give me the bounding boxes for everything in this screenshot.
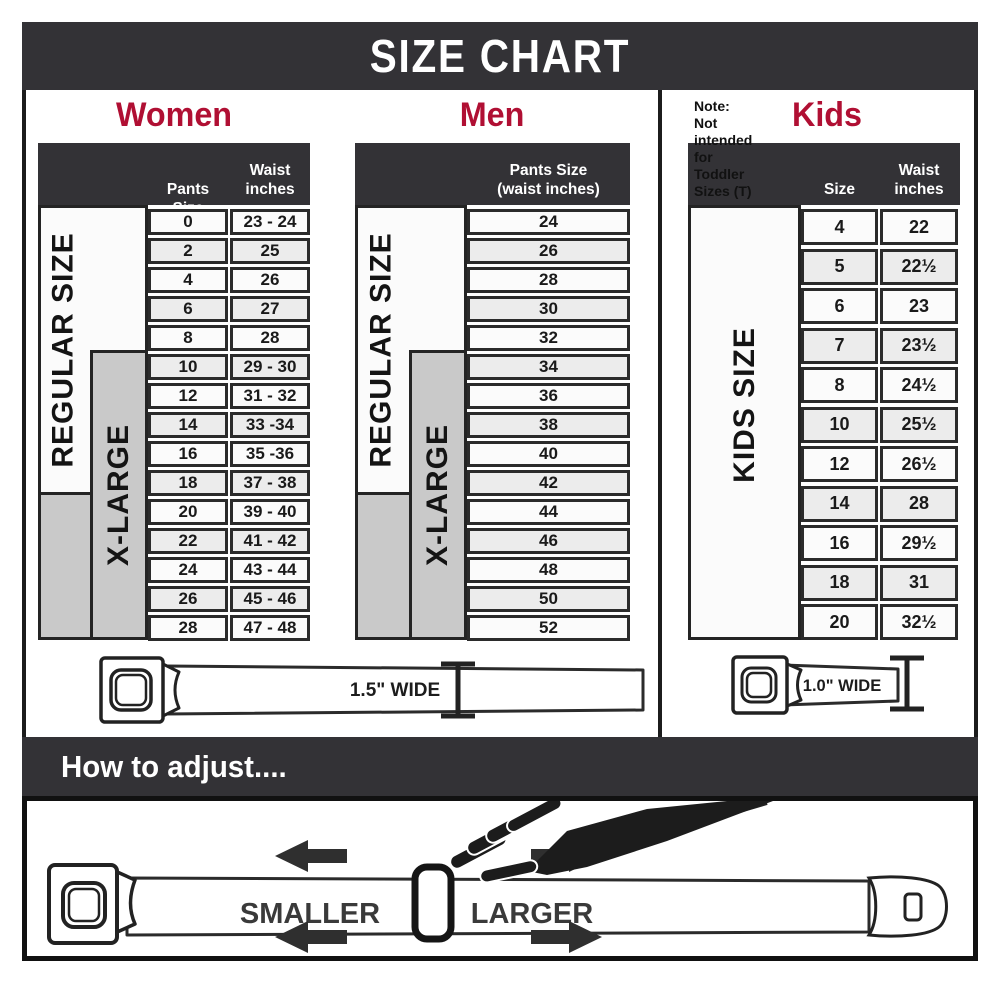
- table-cell: 46: [467, 528, 630, 554]
- table-cell: 32: [467, 325, 630, 351]
- women-size-table: Pants Size Waist inches REGULAR SIZE X-L…: [38, 143, 310, 640]
- table-cell: 20: [801, 604, 878, 640]
- kids-note: Note: Not intended for Toddler Sizes (T): [694, 98, 752, 200]
- table-cell: 28: [148, 615, 228, 641]
- section-divider: [658, 90, 662, 737]
- table-cell: 31: [880, 565, 958, 601]
- kids-belt-width-label: 1.0" WIDE: [803, 677, 881, 695]
- table-cell: 16: [148, 441, 228, 467]
- kids-size-label: KIDS SIZE: [728, 327, 762, 483]
- table-cell: 16: [801, 525, 878, 561]
- table-cell: 24: [148, 557, 228, 583]
- table-cell: 22: [880, 209, 958, 245]
- table-cell: 12: [801, 446, 878, 482]
- table-cell: 28: [467, 267, 630, 293]
- women-regular-label: REGULAR SIZE: [47, 232, 81, 467]
- men-xlarge-label: X-LARGE: [421, 424, 455, 566]
- table-cell: 0: [148, 209, 228, 235]
- adult-belt-illustration: 1.5" WIDE: [95, 648, 655, 733]
- women-waist-column: 23 - 242526272829 - 3031 - 3233 -3435 -3…: [230, 209, 310, 641]
- women-pants-size-column: 0246810121416182022242628: [148, 209, 228, 641]
- table-cell: 28: [230, 325, 310, 351]
- table-cell: 24½: [880, 367, 958, 403]
- smaller-label: SMALLER: [240, 898, 380, 930]
- table-cell: 50: [467, 586, 630, 612]
- table-cell: 32½: [880, 604, 958, 640]
- table-cell: 10: [148, 354, 228, 380]
- table-cell: 33 -34: [230, 412, 310, 438]
- table-cell: 47 - 48: [230, 615, 310, 641]
- kids-waist-column: 2222½2323½24½25½26½2829½3132½: [880, 209, 958, 640]
- table-cell: 30: [467, 296, 630, 322]
- table-cell: 38: [467, 412, 630, 438]
- page-title: SIZE CHART: [370, 29, 630, 83]
- belt-adjuster-slider: [415, 867, 451, 939]
- how-to-adjust-band: How to adjust....: [22, 737, 978, 796]
- belt-tip-hole: [905, 894, 921, 920]
- table-cell: 27: [230, 296, 310, 322]
- table-cell: 23 - 24: [230, 209, 310, 235]
- table-cell: 8: [148, 325, 228, 351]
- adjust-illustration-box: SMALLER LARGER: [22, 796, 978, 961]
- adult-belt-width-label: 1.5" WIDE: [350, 680, 440, 701]
- table-cell: 39 - 40: [230, 499, 310, 525]
- kids-size-table: Size Waist inches KIDS SIZE Note: Not in…: [688, 143, 960, 640]
- table-cell: 26: [230, 267, 310, 293]
- table-cell: 24: [467, 209, 630, 235]
- table-cell: 2: [148, 238, 228, 264]
- table-cell: 26: [467, 238, 630, 264]
- table-cell: 25: [230, 238, 310, 264]
- kids-size-column: 45678101214161820: [801, 209, 878, 640]
- table-cell: 20: [148, 499, 228, 525]
- table-cell: 31 - 32: [230, 383, 310, 409]
- table-cell: 37 - 38: [230, 470, 310, 496]
- table-cell: 26½: [880, 446, 958, 482]
- women-col2-header: Waist inches: [231, 161, 309, 199]
- table-cell: 40: [467, 441, 630, 467]
- table-cell: 36: [467, 383, 630, 409]
- table-cell: 18: [148, 470, 228, 496]
- table-cell: 6: [801, 288, 878, 324]
- table-cell: 23: [880, 288, 958, 324]
- table-cell: 4: [148, 267, 228, 293]
- frame-left-border: [22, 90, 26, 737]
- table-cell: 7: [801, 328, 878, 364]
- table-cell: 29 - 30: [230, 354, 310, 380]
- men-pants-size-column: 242628303234363840424446485052: [467, 209, 630, 641]
- table-cell: 23½: [880, 328, 958, 364]
- table-cell: 45 - 46: [230, 586, 310, 612]
- men-table-header: Pants Size (waist inches): [355, 143, 630, 205]
- table-cell: 44: [467, 499, 630, 525]
- frame-right-border: [974, 90, 978, 737]
- women-section-title: Women: [64, 96, 284, 135]
- how-to-adjust-title: How to adjust....: [61, 749, 287, 785]
- table-cell: 10: [801, 407, 878, 443]
- kids-belt-illustration: 1.0" WIDE: [723, 645, 943, 725]
- table-cell: 12: [148, 383, 228, 409]
- table-cell: 34: [467, 354, 630, 380]
- hand-icon: [448, 801, 773, 884]
- table-cell: 26: [148, 586, 228, 612]
- table-cell: 48: [467, 557, 630, 583]
- women-table-header: Pants Size Waist inches: [38, 143, 310, 205]
- table-cell: 35 -36: [230, 441, 310, 467]
- table-cell: 18: [801, 565, 878, 601]
- men-size-table: Pants Size (waist inches) REGULAR SIZE X…: [355, 143, 630, 640]
- adjust-belt-illustration: SMALLER LARGER: [27, 801, 973, 956]
- size-chart-page: SIZE CHART Women Men Kids Pants Size Wai…: [0, 0, 1000, 1000]
- men-section-title: Men: [382, 96, 602, 135]
- kids-col2-header: Waist inches: [881, 161, 957, 199]
- men-regular-label: REGULAR SIZE: [365, 232, 399, 467]
- table-cell: 43 - 44: [230, 557, 310, 583]
- table-cell: 6: [148, 296, 228, 322]
- table-cell: 25½: [880, 407, 958, 443]
- table-cell: 41 - 42: [230, 528, 310, 554]
- size-chart-banner: SIZE CHART: [22, 22, 978, 90]
- table-cell: 5: [801, 249, 878, 285]
- table-cell: 22½: [880, 249, 958, 285]
- kids-col1-header: Size: [802, 180, 877, 199]
- table-cell: 52: [467, 615, 630, 641]
- table-cell: 14: [148, 412, 228, 438]
- table-cell: 28: [880, 486, 958, 522]
- table-cell: 8: [801, 367, 878, 403]
- table-cell: 42: [467, 470, 630, 496]
- table-cell: 14: [801, 486, 878, 522]
- table-cell: 22: [148, 528, 228, 554]
- table-cell: 4: [801, 209, 878, 245]
- men-col-header: Pants Size (waist inches): [469, 161, 627, 199]
- women-xlarge-label: X-LARGE: [102, 424, 136, 566]
- table-cell: 29½: [880, 525, 958, 561]
